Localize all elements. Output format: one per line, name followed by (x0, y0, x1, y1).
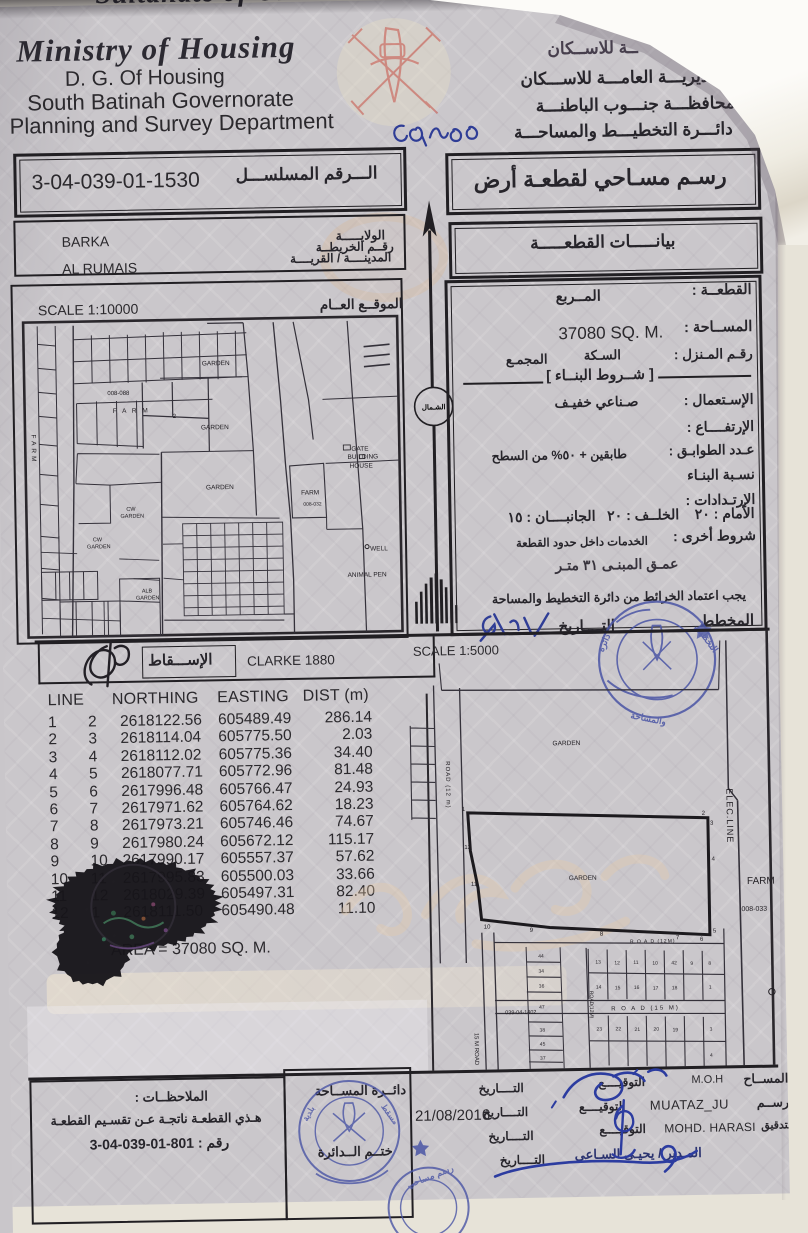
svg-text:5: 5 (713, 929, 717, 935)
svg-text:18: 18 (672, 985, 678, 991)
svg-text:ALB: ALB (142, 588, 153, 594)
svg-text:R O A D (15 M): R O A D (15 M) (611, 1005, 680, 1012)
svg-text:GATE: GATE (351, 446, 369, 453)
svg-text:ROAD (12 m): ROAD (12 m) (444, 761, 451, 808)
svg-text:ELEC.LINE: ELEC.LINE (724, 788, 735, 843)
svg-text:3: 3 (709, 1027, 712, 1033)
svg-text:039-04-1402: 039-04-1402 (505, 1010, 536, 1017)
svg-text:008-032: 008-032 (303, 501, 322, 507)
svg-text:36: 36 (539, 984, 545, 990)
svg-text:4: 4 (710, 1053, 713, 1059)
svg-text:GARDEN: GARDEN (87, 544, 111, 550)
svg-text:12: 12 (464, 845, 471, 851)
svg-text:FARM: FARM (30, 434, 38, 464)
svg-text:ROAD(12M): ROAD(12M) (588, 991, 594, 1019)
svg-text:GARDEN: GARDEN (201, 424, 229, 431)
svg-text:10: 10 (484, 925, 491, 931)
svg-text:15: 15 (615, 985, 621, 991)
svg-text:6: 6 (700, 937, 704, 943)
svg-text:الشـمال: الشـمال (422, 403, 446, 411)
svg-text:9: 9 (690, 961, 693, 967)
svg-text:WELL: WELL (370, 545, 388, 552)
svg-text:11: 11 (471, 882, 478, 888)
svg-text:12: 12 (614, 960, 620, 966)
svg-text:37: 37 (540, 1056, 546, 1062)
svg-text:45: 45 (540, 1042, 546, 1048)
svg-text:2: 2 (702, 811, 706, 817)
svg-text:8: 8 (708, 961, 711, 967)
svg-text:بلدية: بلدية (301, 1105, 316, 1123)
svg-text:FARM: FARM (301, 489, 319, 496)
svg-text:3: 3 (710, 821, 714, 827)
svg-text:42: 42 (671, 960, 677, 966)
svg-text:19: 19 (672, 1027, 678, 1033)
svg-text:FARM: FARM (747, 876, 775, 887)
svg-text:7: 7 (676, 935, 680, 941)
svg-text:21: 21 (634, 1027, 640, 1033)
svg-text:CW: CW (93, 537, 103, 543)
svg-text:GARDEN: GARDEN (120, 514, 144, 520)
svg-text:23: 23 (596, 1027, 602, 1033)
svg-text:34: 34 (538, 969, 544, 975)
svg-text:HOUSE: HOUSE (350, 463, 374, 470)
svg-text:15 M ROAD: 15 M ROAD (473, 1033, 480, 1066)
svg-text:8: 8 (600, 932, 604, 938)
svg-text:47: 47 (539, 1005, 545, 1011)
svg-text:10: 10 (652, 961, 658, 967)
svg-text:ANIMAL PEN: ANIMAL PEN (348, 571, 388, 579)
svg-text:38: 38 (539, 1028, 545, 1034)
svg-text:1: 1 (709, 985, 712, 991)
svg-text:R O A D (12M): R O A D (12M) (630, 938, 676, 945)
svg-text:14: 14 (596, 985, 602, 991)
svg-text:9: 9 (530, 928, 534, 934)
svg-text:16: 16 (634, 985, 640, 991)
svg-text:GARDEN: GARDEN (206, 484, 234, 491)
svg-text:CW: CW (126, 507, 136, 513)
svg-text:11: 11 (633, 960, 639, 966)
svg-text:44: 44 (538, 954, 544, 960)
svg-text:22: 22 (615, 1026, 621, 1032)
svg-text:GARDEN: GARDEN (552, 740, 580, 747)
svg-text:4: 4 (712, 857, 716, 863)
svg-text:008-088: 008-088 (107, 391, 130, 397)
svg-text:17: 17 (653, 986, 659, 992)
svg-text:1: 1 (462, 807, 466, 813)
svg-text:GARDEN: GARDEN (136, 595, 160, 601)
svg-text:GARDEN: GARDEN (202, 360, 230, 367)
svg-text:20: 20 (653, 1027, 659, 1033)
svg-text:008-033: 008-033 (741, 906, 767, 913)
svg-text:13: 13 (595, 960, 601, 966)
svg-text:GARDEN: GARDEN (569, 875, 597, 882)
svg-text:F A R M: F A R M (113, 407, 150, 415)
